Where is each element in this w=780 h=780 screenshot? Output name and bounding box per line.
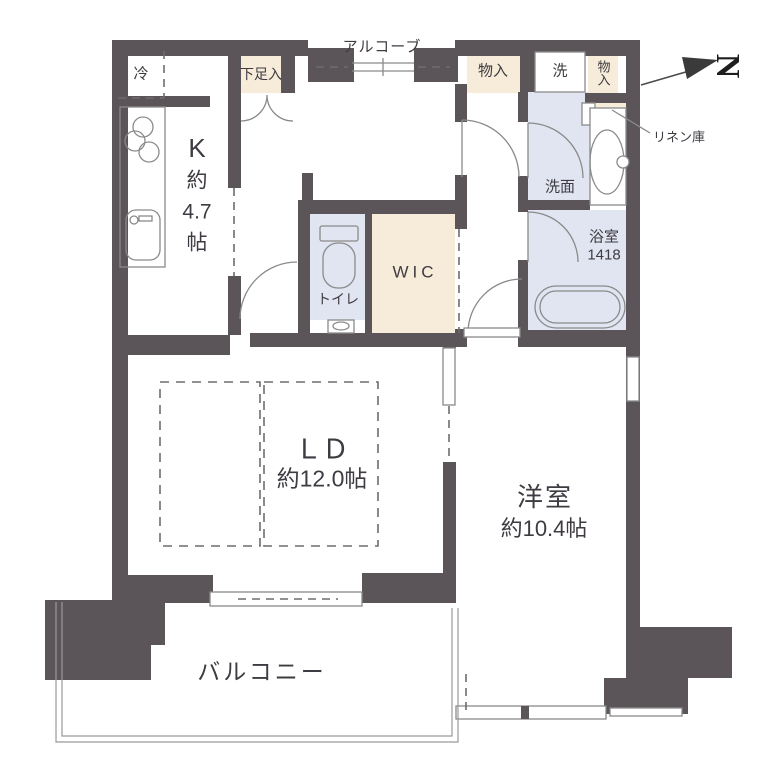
wall xyxy=(112,335,230,355)
toilet-counter xyxy=(328,320,354,333)
wall xyxy=(528,200,590,210)
ld-dashed-area xyxy=(160,382,260,546)
wall xyxy=(443,333,456,348)
wall xyxy=(298,200,458,214)
corridor-door-arc xyxy=(462,120,519,177)
linen-label: リネン庫 xyxy=(653,131,705,144)
balcony-label: バルコニー xyxy=(197,661,327,684)
wall xyxy=(518,260,528,335)
wall xyxy=(298,214,310,333)
stove-burner-icon xyxy=(133,117,153,137)
wall xyxy=(112,40,128,605)
bath-label: 浴室 xyxy=(589,230,619,245)
basin-bowl xyxy=(590,130,624,194)
wall xyxy=(455,84,467,122)
wall xyxy=(443,462,456,576)
wic-label: WIC xyxy=(392,264,437,281)
washroom-label: 洗面 xyxy=(545,180,575,195)
north-indicator: N xyxy=(708,54,746,79)
wall xyxy=(365,214,372,333)
closet-left-label: 物入 xyxy=(478,64,508,79)
wall xyxy=(112,575,213,603)
linen-closet-floor xyxy=(596,103,626,125)
kitchen-label: 帖 xyxy=(187,233,208,254)
north-arrow-line xyxy=(641,69,696,85)
wall xyxy=(250,333,458,347)
stove-burner-icon xyxy=(125,131,145,151)
western-door-arc xyxy=(468,279,522,333)
sink-faucet-handle xyxy=(139,216,152,221)
alcove-label: アルコーブ xyxy=(343,40,422,55)
wall xyxy=(455,40,640,56)
western-door-leaf xyxy=(464,328,520,337)
kitchen-label: K xyxy=(188,135,205,161)
wall xyxy=(228,276,241,335)
toilet-door-arc xyxy=(240,262,297,319)
wall xyxy=(520,48,535,92)
toilet-counter-bowl xyxy=(333,322,349,330)
wall xyxy=(585,93,640,103)
entrance-door xyxy=(352,58,414,76)
wall xyxy=(112,40,308,56)
wall xyxy=(302,173,313,202)
kitchen-label: 約 xyxy=(187,171,208,192)
window-mullion xyxy=(521,706,529,719)
wall xyxy=(518,330,640,347)
sink-faucet-icon xyxy=(130,216,138,224)
closet-right-label: 物入 xyxy=(597,60,610,86)
wall xyxy=(604,678,688,714)
wall xyxy=(518,176,528,212)
stove-burner-icon xyxy=(139,142,159,162)
washer-label: 洗 xyxy=(552,64,567,79)
wall xyxy=(118,96,210,107)
ld-label: ＬＤ xyxy=(295,437,349,464)
shoe-cabinet-label: 下足入 xyxy=(240,67,282,81)
balcony-wall xyxy=(45,600,151,680)
floor-plan: 冷 K 約 4.7 帖 下足入 アルコーブ 物入 洗 物入 リネン庫 洗面 浴室… xyxy=(0,0,780,780)
wall xyxy=(626,627,732,678)
wall xyxy=(362,573,456,603)
western-room-size-label: 約10.4帖 xyxy=(501,518,588,540)
wall xyxy=(518,92,528,122)
ld-size-label: 約12.0帖 xyxy=(277,468,368,491)
bath-size-label: 1418 xyxy=(587,248,620,263)
ld-window xyxy=(210,592,362,606)
toilet-label: トイレ xyxy=(317,292,359,306)
balcony-wall xyxy=(150,600,165,645)
sliding-door-panel xyxy=(443,348,455,405)
kitchen-label: 4.7 xyxy=(182,202,211,223)
shoe-cabinet-door-arc xyxy=(241,95,293,121)
wall xyxy=(455,175,467,229)
fridge-label: 冷 xyxy=(133,67,148,82)
wall xyxy=(281,48,295,93)
western-window xyxy=(456,706,606,719)
kitchen-sink xyxy=(126,210,160,260)
western-room-label: 洋室 xyxy=(517,484,573,510)
